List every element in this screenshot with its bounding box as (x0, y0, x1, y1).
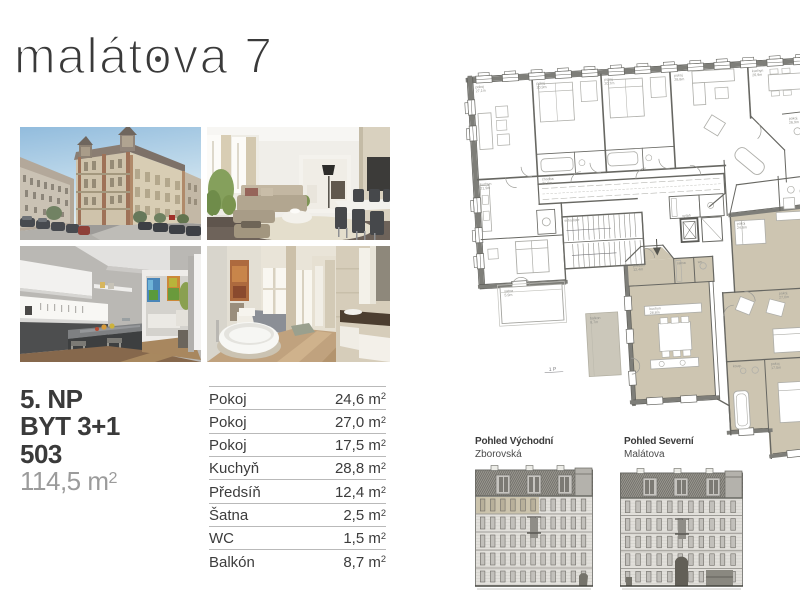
svg-text:26,9m: 26,9m (789, 120, 799, 125)
svg-text:5,9m: 5,9m (504, 293, 512, 297)
svg-text:20,9m: 20,9m (536, 85, 546, 90)
svg-text:28,8m: 28,8m (650, 310, 660, 315)
svg-text:27,0m: 27,0m (779, 295, 789, 300)
svg-text:wc: wc (698, 260, 703, 264)
svg-text:26,9m: 26,9m (752, 73, 762, 78)
svg-text:21,9m: 21,9m (480, 186, 490, 191)
svg-text:8,7m: 8,7m (590, 320, 598, 324)
svg-text:12,4m: 12,4m (633, 267, 643, 272)
svg-text:24,6m: 24,6m (737, 225, 747, 230)
svg-text:vytah: vytah (682, 214, 691, 218)
svg-text:koup.: koup. (733, 364, 742, 368)
svg-text:28,8m: 28,8m (674, 77, 684, 82)
svg-text:satna: satna (677, 261, 686, 265)
svg-text:17,5m: 17,5m (771, 366, 781, 371)
svg-text:71,9m: 71,9m (542, 181, 552, 186)
svg-text:27,1m: 27,1m (476, 89, 486, 94)
svg-text:20,7m: 20,7m (604, 81, 614, 86)
